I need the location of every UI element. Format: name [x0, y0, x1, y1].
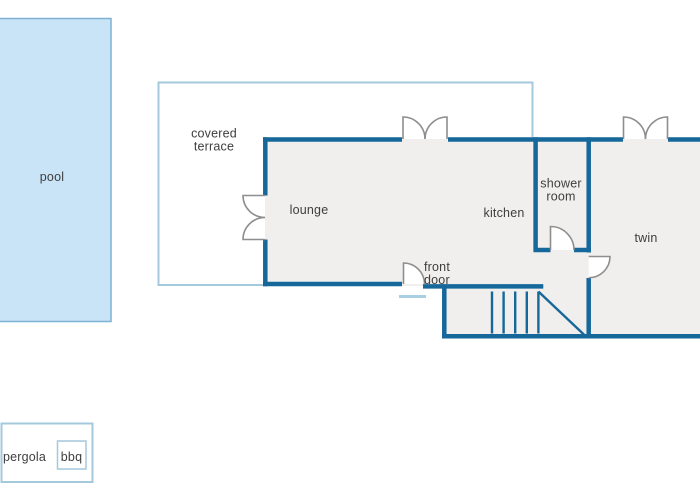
twin-french-door-left: [624, 117, 646, 139]
kitchen-label: kitchen: [483, 207, 524, 220]
front-door-label: front door: [424, 261, 464, 286]
floor-plan: pool covered terrace lounge kitchen show…: [0, 0, 700, 500]
pool-label: pool: [40, 171, 64, 184]
twin-french-door-right: [646, 117, 668, 139]
floor-plan-drawing: [0, 0, 700, 500]
shower-room-label: shower room: [535, 178, 587, 203]
twin-label: twin: [634, 232, 657, 245]
lounge-label: lounge: [290, 204, 329, 217]
covered-terrace-label: covered terrace: [182, 128, 246, 153]
bbq-label: bbq: [61, 450, 82, 463]
pergola-label: pergola: [0, 451, 50, 464]
